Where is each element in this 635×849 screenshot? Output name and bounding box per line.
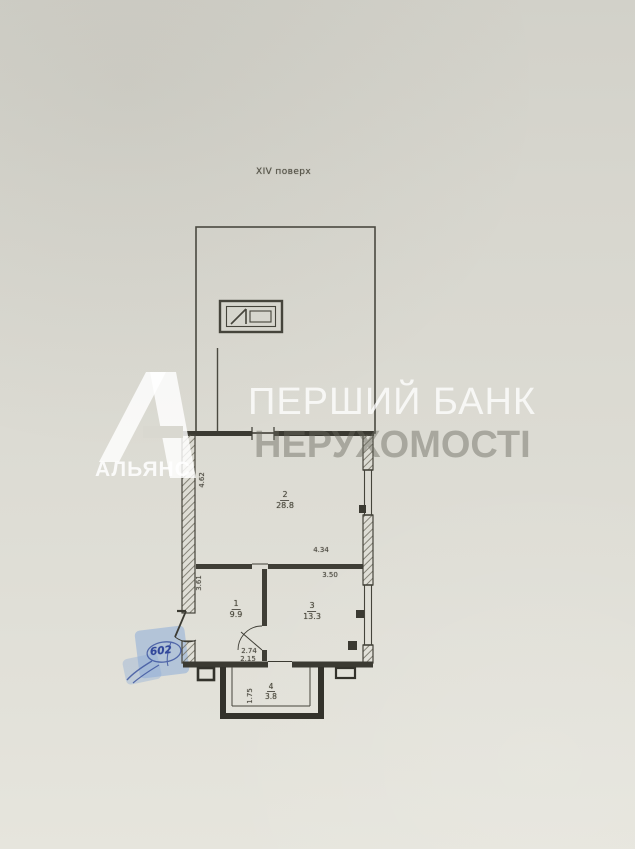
watermark-brand-line1: ПЕРШИЙ БАНК <box>248 383 536 421</box>
floorplan-photo: XIV поверх 2 28.8 1 9.9 3 13.3 4 3.8 4.3… <box>0 0 635 849</box>
watermark-brand-line2: НЕРУХОМОСТІ <box>254 426 531 464</box>
alliance-logo-text: АЛЬЯНС <box>95 459 191 480</box>
